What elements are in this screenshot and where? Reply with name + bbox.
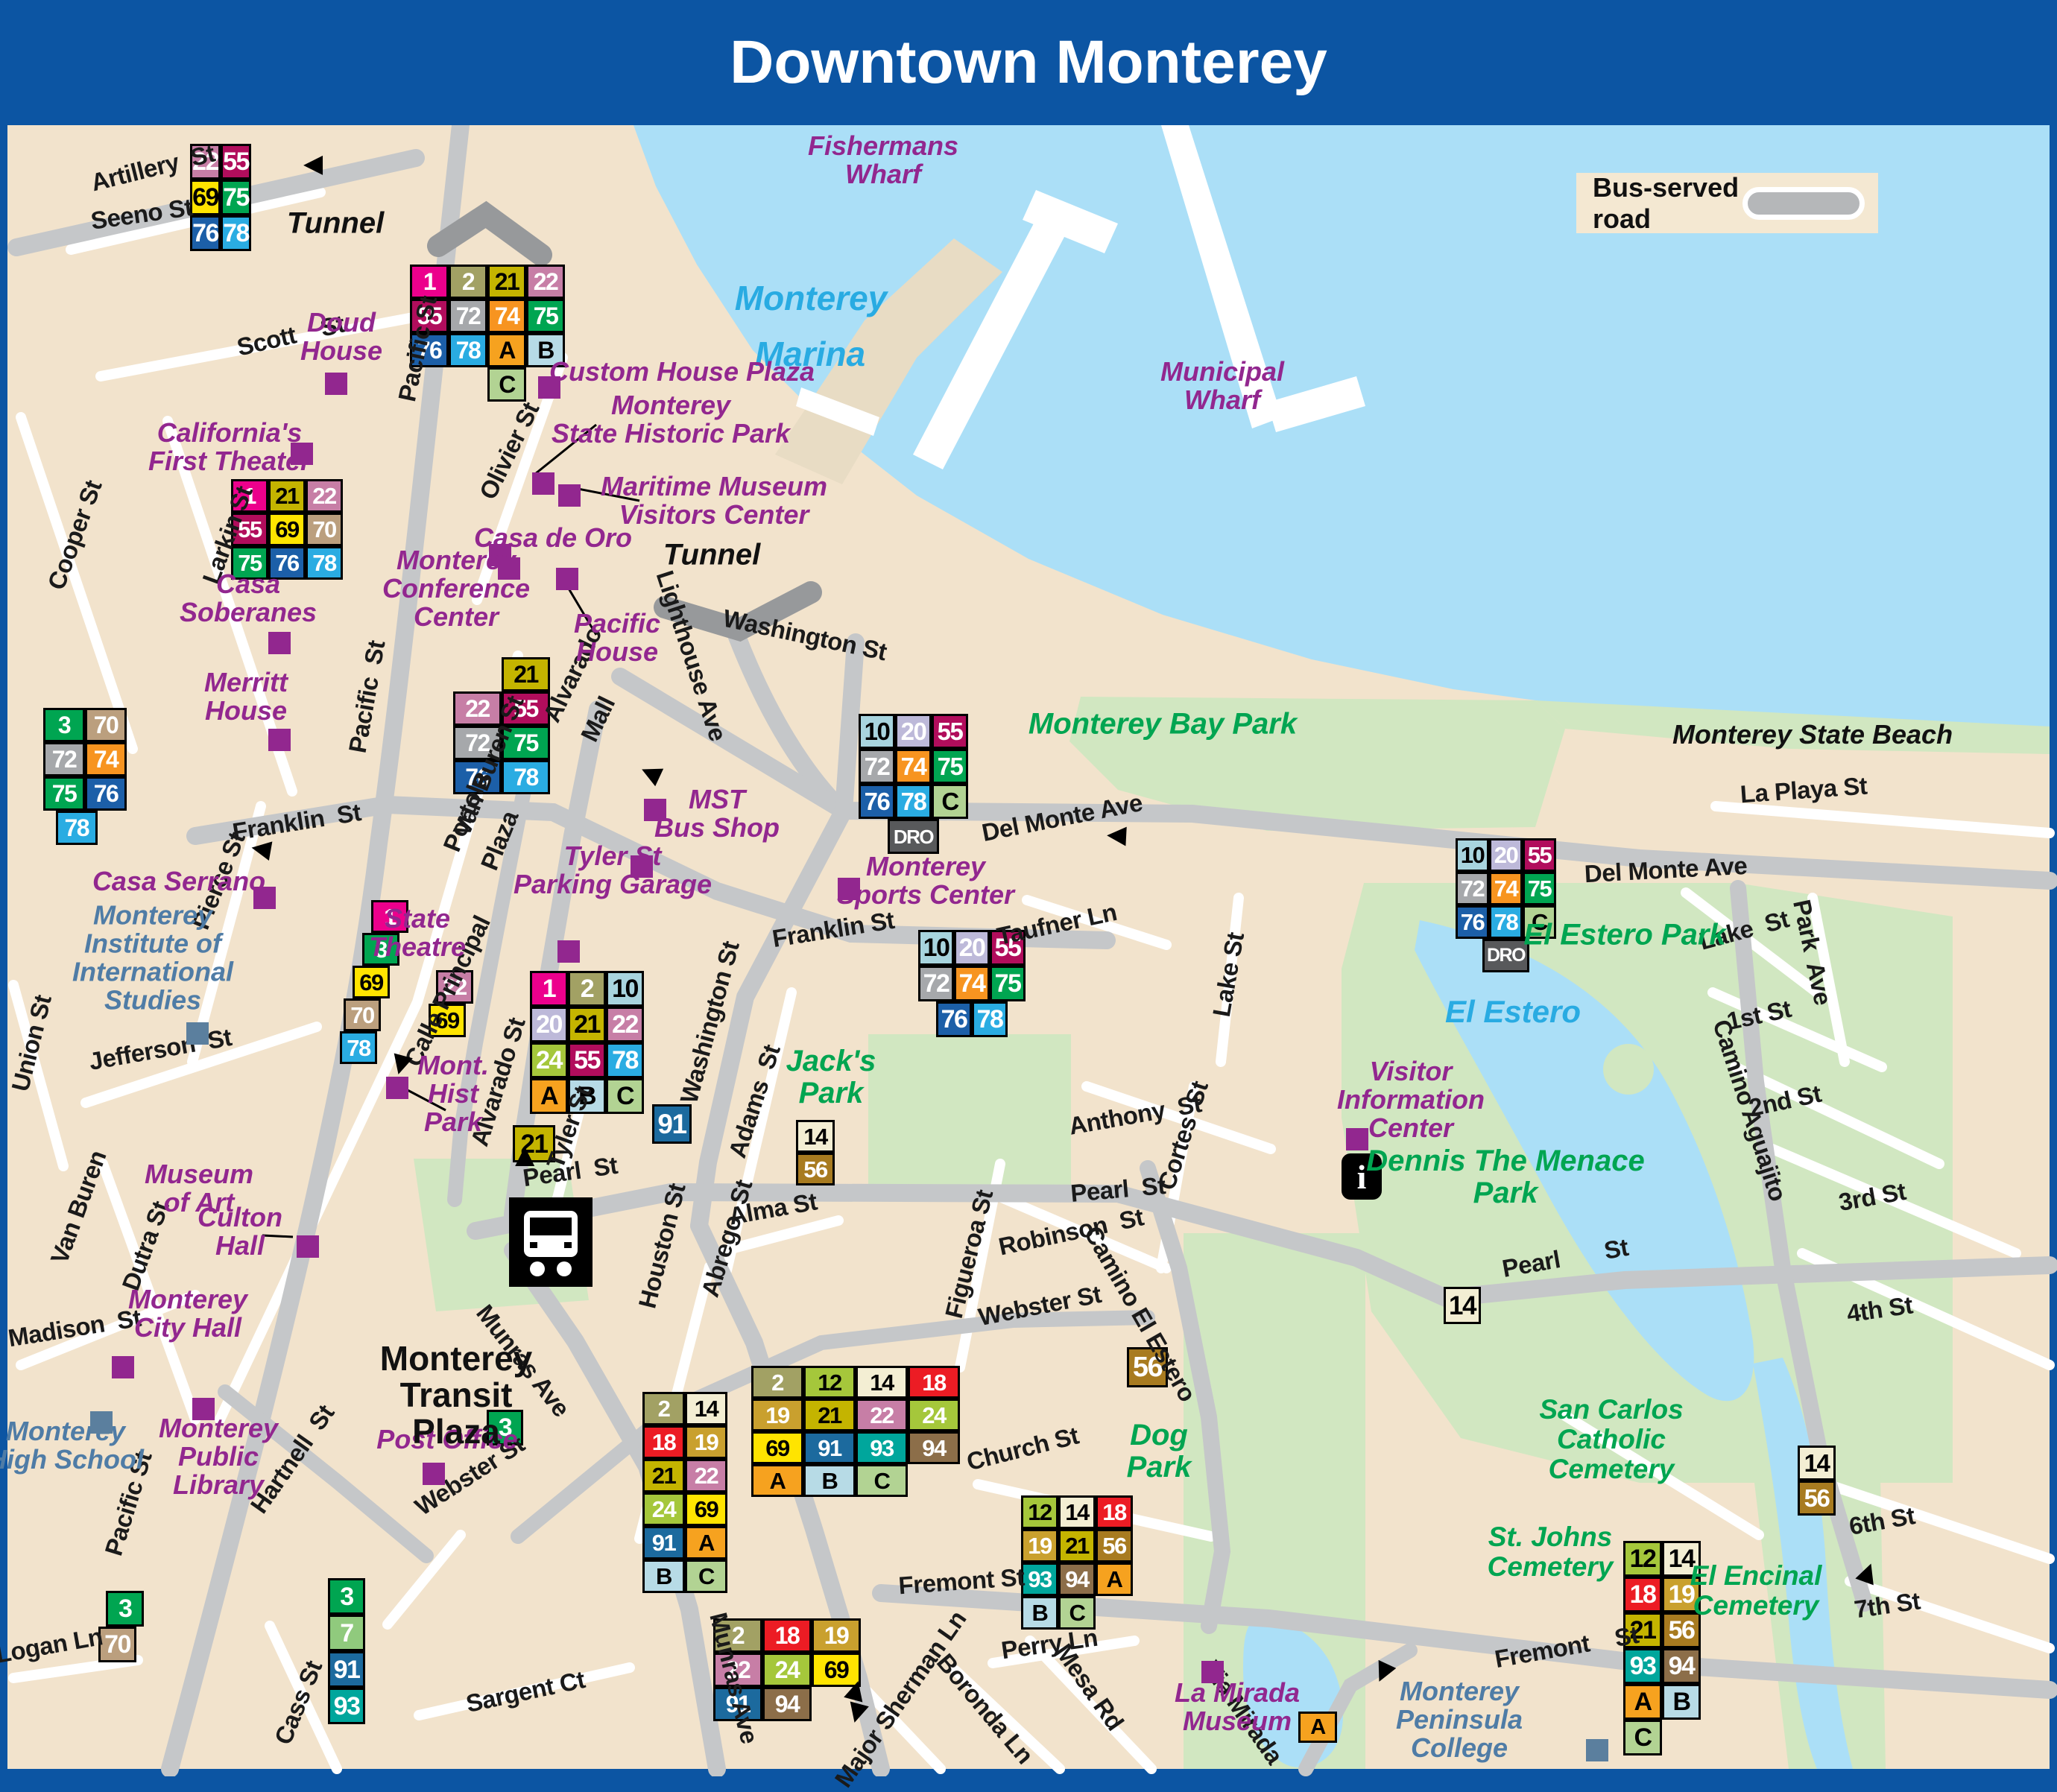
landmark-marker-monterey-high-school [90, 1411, 113, 1434]
route-badge-20: 20 [954, 930, 990, 966]
route-badge-10: 10 [606, 971, 644, 1007]
landmark-marker-monterey-peninsula-college [1586, 1739, 1608, 1761]
route-badge-10: 10 [1456, 838, 1489, 872]
water-label-monterey: Monterey [735, 278, 887, 318]
route-badge-74: 74 [954, 966, 990, 1001]
downtown-monterey-map-page: { "title": "Downtown Monterey", "legend"… [0, 0, 2057, 1776]
route-badge-75: 75 [990, 966, 1026, 1001]
route-badge-94: 94 [1058, 1563, 1096, 1596]
route-badge-78: 78 [56, 811, 98, 845]
route-badge-94: 94 [762, 1687, 812, 1721]
landmark-marker-post-office [423, 1463, 445, 1485]
landmark-tyler-st-parking-garage: Tyler StParking Garage [514, 842, 712, 899]
route-badge-18: 18 [908, 1366, 960, 1399]
landmark-marker-casa-soberanes [268, 632, 291, 654]
route-badge-3: 3 [106, 1591, 144, 1627]
landmark-marker-casa-serrano [253, 887, 276, 909]
landmark-monterey-sports-center: MontereySports Center [837, 852, 1014, 909]
route-badge-93: 93 [1623, 1648, 1662, 1684]
route-badge-72: 72 [859, 749, 895, 784]
route-badge-76: 76 [85, 776, 127, 811]
landmark-marker-la-mirada-museum [1201, 1661, 1224, 1683]
route-badge-93: 93 [856, 1431, 908, 1464]
route-badge-14: 14 [796, 1120, 835, 1153]
landmark-monterey-public-library: MontereyPublicLibrary [159, 1414, 278, 1499]
route-badge-C: C [487, 367, 526, 402]
route-badge-19: 19 [751, 1399, 803, 1431]
route-badge-72: 72 [449, 299, 487, 333]
route-badge-12: 12 [1021, 1495, 1058, 1529]
route-badge-14: 14 [1798, 1446, 1836, 1481]
landmark-marker-maritime-museum-visitors-center [558, 484, 581, 507]
route-badge-55: 55 [568, 1042, 606, 1078]
route-badge-74: 74 [85, 742, 127, 776]
landmark-pacific-house: PacificHouse [574, 610, 660, 666]
route-badge-3: 3 [328, 1578, 365, 1615]
landmark-monterey-state-historic-park: MontereyState Historic Park [552, 391, 790, 448]
route-badge-91: 91 [642, 1526, 685, 1560]
route-badge-24: 24 [762, 1653, 812, 1687]
landmark-maritime-museum-visitors-center: Maritime MuseumVisitors Center [601, 472, 827, 529]
landmark-mont-hist-park: Mont.HistPark [417, 1051, 489, 1136]
route-badge-C: C [1623, 1720, 1662, 1755]
route-badge-2: 2 [449, 265, 487, 299]
route-badge-A: A [1298, 1712, 1337, 1743]
landmark-fishermans-wharf: FishermansWharf [808, 132, 958, 189]
route-badge-12: 12 [803, 1366, 856, 1399]
route-badge-78: 78 [340, 1031, 377, 1064]
route-badge-A: A [487, 333, 526, 367]
label-tunnel: Tunnel [663, 539, 760, 572]
route-badge-20: 20 [530, 1007, 568, 1042]
route-badge-22: 22 [856, 1399, 908, 1431]
landmark-casa-serrano: Casa Serrano [92, 867, 265, 896]
legend-label: Bus-served road [1593, 172, 1742, 235]
title-bar: Downtown Monterey [0, 0, 2057, 125]
route-badge-B: B [803, 1464, 856, 1497]
route-badge-56: 56 [1798, 1481, 1836, 1516]
landmark-state-theatre: StateTheatre [369, 905, 466, 961]
route-badge-21: 21 [642, 1459, 685, 1492]
route-badge-76: 76 [1456, 905, 1489, 939]
route-badge-18: 18 [642, 1425, 685, 1459]
route-badge-B: B [1021, 1596, 1058, 1630]
route-badge-75: 75 [1523, 872, 1556, 905]
route-badge-14: 14 [1444, 1287, 1481, 1324]
route-badge-78: 78 [972, 1001, 1008, 1037]
route-badge-78: 78 [1489, 905, 1523, 939]
route-badge-A: A [685, 1526, 727, 1560]
landmark-marker-california-s-first-theater [291, 443, 313, 465]
route-badge-78: 78 [221, 215, 251, 251]
route-badge-2: 2 [568, 971, 606, 1007]
route-badge-21: 21 [502, 657, 550, 691]
route-badge-70: 70 [98, 1627, 136, 1662]
landmark-monterey-city-hall: MontereyCity Hall [128, 1285, 247, 1342]
landmark-marker-visitor-information-center [1346, 1128, 1368, 1150]
route-badge-14: 14 [1058, 1495, 1096, 1529]
route-badge-C: C [685, 1560, 727, 1593]
route-badge-70: 70 [85, 708, 127, 742]
route-badge-3: 3 [43, 708, 85, 742]
route-badge-93: 93 [328, 1688, 365, 1724]
landmark-monterey-institute-of-international-studies: MontereyInstitute ofInternationalStudies [72, 902, 233, 1016]
route-badge-22: 22 [306, 479, 343, 513]
landmark-marker-monterey-sports-center [838, 878, 860, 900]
landmark-casa-soberanes: CasaSoberanes [180, 570, 317, 627]
route-badge-19: 19 [685, 1425, 727, 1459]
route-badge-20: 20 [1489, 838, 1523, 872]
park-label-dog-park: DogPark [1127, 1419, 1192, 1484]
route-badge-93: 93 [1021, 1563, 1058, 1596]
route-badge-55: 55 [221, 144, 251, 180]
route-badge-21: 21 [803, 1399, 856, 1431]
route-badge-76: 76 [190, 215, 221, 251]
route-badge-75: 75 [932, 749, 968, 784]
park-label-monterey-bay-park: Monterey Bay Park [1028, 708, 1297, 740]
park-label-dennis-the-menace-park: Dennis The MenacePark [1366, 1145, 1644, 1209]
landmark-mst-bus-shop: MSTBus Shop [654, 785, 780, 842]
route-badge-56: 56 [1096, 1529, 1133, 1563]
route-badge-75: 75 [526, 299, 565, 333]
route-badge-14: 14 [685, 1392, 727, 1425]
route-badge-76: 76 [859, 784, 895, 819]
route-badge-19: 19 [812, 1618, 861, 1653]
route-badge-21: 21 [487, 265, 526, 299]
route-badge-55: 55 [932, 714, 968, 749]
route-badge-69: 69 [353, 966, 390, 998]
lake-island [1603, 1044, 1654, 1095]
route-badge-12: 12 [1623, 1541, 1662, 1577]
route-badge-A: A [1623, 1684, 1662, 1720]
route-badge-C: C [856, 1464, 908, 1497]
route-badge-20: 20 [895, 714, 932, 749]
route-badge-70: 70 [306, 513, 343, 546]
route-badge-24: 24 [908, 1399, 960, 1431]
landmark-marker-monterey-conference-center [498, 557, 520, 580]
route-badge-B: B [642, 1560, 685, 1593]
landmark-marker-merritt-house [268, 729, 291, 751]
route-badge-91: 91 [803, 1431, 856, 1464]
water-label-el-estero: El Estero [1445, 994, 1581, 1030]
route-badge-21: 21 [268, 479, 306, 513]
landmark-marker-pacific-house [556, 568, 578, 590]
landmark-doud-house: DoudHouse [300, 308, 382, 365]
direction-arrow: ▶ [508, 1147, 538, 1166]
route-badge-78: 78 [502, 760, 550, 794]
route-badge-10: 10 [859, 714, 895, 749]
route-badge-72: 72 [1456, 872, 1489, 905]
landmark-merritt-house: MerrittHouse [204, 668, 288, 725]
landmark-marker-tyler-st-parking-garage [631, 855, 653, 878]
park-label-san-carlos-catholic-cemetery: San CarlosCatholicCemetery [1539, 1395, 1683, 1484]
route-badge-76: 76 [936, 1001, 972, 1037]
legend-box: Bus-served road [1576, 173, 1878, 233]
landmark-municipal-wharf: MunicipalWharf [1160, 358, 1284, 414]
route-badge-69: 69 [751, 1431, 803, 1464]
park-label-jack-s-park: Jack'sPark [786, 1045, 876, 1109]
landmark-marker-monterey-state-historic-park [532, 472, 554, 495]
route-badge-74: 74 [895, 749, 932, 784]
route-badge-24: 24 [642, 1492, 685, 1526]
route-badge-55: 55 [1523, 838, 1556, 872]
landmark-marker-culton-hall [297, 1235, 319, 1258]
landmark-monterey-transit-plaza: MontereyTransitPlaza [380, 1340, 532, 1449]
route-badge-18: 18 [1623, 1577, 1662, 1612]
landmark-monterey-high-school: MontereyHigh School [0, 1417, 144, 1474]
route-badge-24: 24 [530, 1042, 568, 1078]
route-badge-70: 70 [344, 998, 381, 1031]
page-title: Downtown Monterey [730, 28, 1327, 98]
route-badge-18: 18 [1096, 1495, 1133, 1529]
route-badge-91: 91 [328, 1651, 365, 1688]
route-badge-78: 78 [606, 1042, 644, 1078]
route-badge-2: 2 [751, 1366, 803, 1399]
route-badge-21: 21 [1058, 1529, 1096, 1563]
route-badge-21: 21 [568, 1007, 606, 1042]
direction-arrow: ▶ [303, 152, 323, 182]
route-badge-91: 91 [652, 1104, 692, 1144]
route-badge-94: 94 [1662, 1648, 1701, 1684]
route-badge-A: A [1096, 1563, 1133, 1596]
landmark-culton-hall: CultonHall [198, 1203, 282, 1260]
route-badge-2: 2 [642, 1392, 685, 1425]
label-monterey-state-beach: Monterey State Beach [1672, 719, 1953, 750]
landmark-marker-state-theatre [557, 940, 580, 963]
direction-arrow: ▶ [1106, 822, 1127, 852]
landmark-california-s-first-theater: California'sFirst Theater [148, 419, 311, 475]
route-badge-22: 22 [606, 1007, 644, 1042]
route-badge-22: 22 [685, 1459, 727, 1492]
route-badge-69: 69 [268, 513, 306, 546]
route-badge-56: 56 [796, 1153, 835, 1185]
route-badge-19: 19 [1021, 1529, 1058, 1563]
park-label-el-encinal-cemetery: El EncinalCemetery [1690, 1561, 1822, 1621]
route-badge-22: 22 [526, 265, 565, 299]
landmark-marker-doud-house [325, 373, 347, 395]
route-badge-C: C [606, 1078, 644, 1114]
bus-served-road-swatch [1742, 187, 1865, 220]
route-badge-74: 74 [487, 299, 526, 333]
landmark-marker-mst-bus-shop [644, 799, 666, 821]
park-label-el-estero-park: El Estero Park [1523, 919, 1725, 951]
landmark-la-mirada-museum: La MiradaMuseum [1175, 1679, 1300, 1735]
route-badge-72: 72 [43, 742, 85, 776]
label-tunnel: Tunnel [287, 207, 384, 241]
route-badge-78: 78 [449, 333, 487, 367]
route-badge-1: 1 [530, 971, 568, 1007]
route-badge-DRO: DRO [888, 819, 939, 854]
map-canvas: Bus-served road i 2255697576781221225572… [0, 0, 2057, 1776]
route-badge-75: 75 [221, 180, 251, 215]
route-badge-7: 7 [328, 1615, 365, 1651]
park-label-st-johns-cemetery: St. JohnsCemetery [1488, 1522, 1614, 1582]
route-badge-69: 69 [190, 180, 221, 215]
route-badge-C: C [932, 784, 968, 819]
route-badge-94: 94 [908, 1431, 960, 1464]
route-badge-75: 75 [43, 776, 85, 811]
route-badge-10: 10 [918, 930, 954, 966]
landmark-monterey-peninsula-college: MontereyPeninsulaCollege [1396, 1677, 1523, 1762]
route-badge-78: 78 [895, 784, 932, 819]
bus-icon [509, 1197, 593, 1287]
route-badge-74: 74 [1489, 872, 1523, 905]
landmark-marker-monterey-public-library [192, 1398, 215, 1420]
route-badge-14: 14 [856, 1366, 908, 1399]
landmark-marker-monterey-city-hall [112, 1356, 134, 1378]
route-badge-B: B [1662, 1684, 1701, 1720]
landmark-marker-monterey-institute-of-international-studies [186, 1022, 209, 1045]
route-badge-A: A [751, 1464, 803, 1497]
landmark-custom-house-plaza: Custom House Plaza [549, 358, 815, 386]
route-badge-69: 69 [685, 1492, 727, 1526]
landmark-marker-mont-hist-park [386, 1077, 408, 1099]
route-badge-72: 72 [918, 966, 954, 1001]
route-badge-18: 18 [762, 1618, 812, 1653]
route-badge-DRO: DRO [1482, 939, 1529, 972]
